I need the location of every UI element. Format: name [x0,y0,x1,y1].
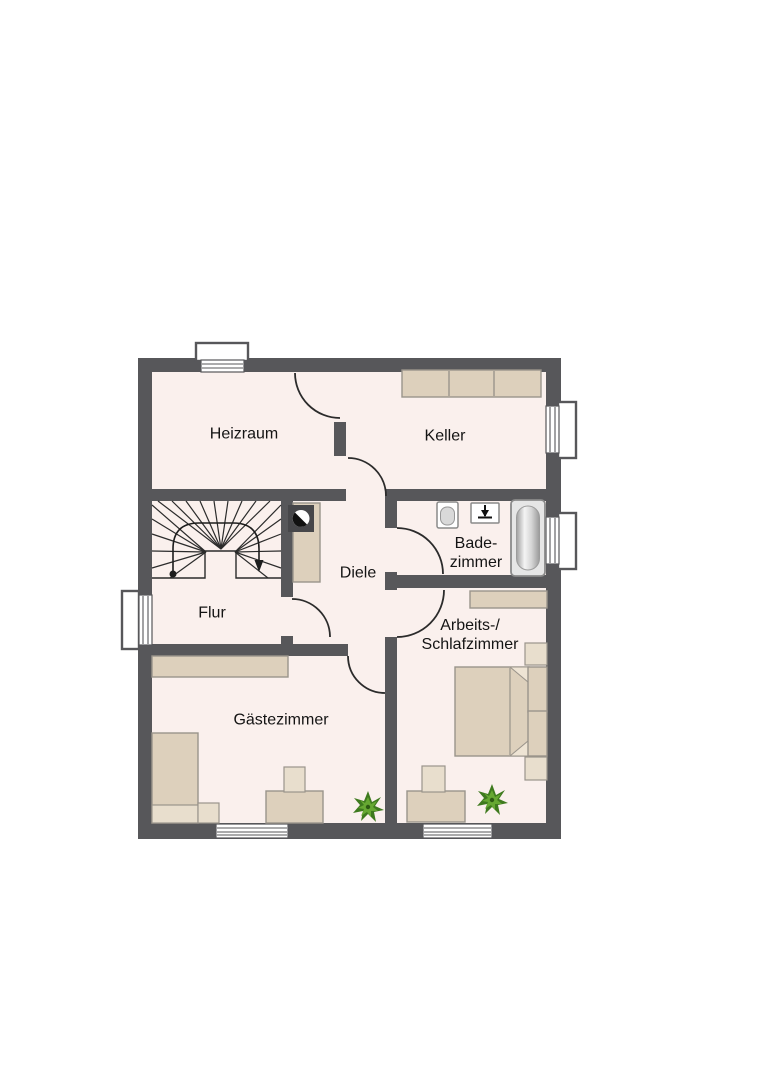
schlaf-nightstand-top [525,643,547,665]
room-label-flur: Flur [198,604,226,623]
toilet-icon [437,502,458,528]
room-label-gaestezimmer: Gästezimmer [233,711,328,730]
wall-flur-gaeste-divider [152,644,348,656]
gaeste-desk [266,791,323,823]
schlaf-desk [407,791,465,822]
gaeste-single-bed [152,733,198,823]
room-label-heizraum: Heizraum [210,425,278,444]
gaeste-chair [284,767,305,792]
floor-plan-drawing [0,0,764,1080]
schlaf-chair [422,766,445,792]
window-bottom-gaestezimmer [216,824,288,838]
window-left-flur [122,591,152,649]
wall-outer-bottom [138,823,561,839]
wall-heizraum-keller-divider [334,422,346,456]
walking-line-start-dot [170,571,177,578]
decor-sphere-icon [288,505,314,532]
window-top-heizraum [196,343,248,372]
keller-shelf-unit [402,370,541,397]
room-label-arbeits-line1: Arbeits-/ [422,616,519,635]
washbasin-icon [471,503,499,523]
schlaf-double-bed [455,667,547,756]
gaeste-wall-shelf [152,656,288,677]
wall-diele-bad-upper [385,501,397,528]
room-label-badezimmer-line2: zimmer [450,553,502,572]
room-label-keller: Keller [425,427,466,446]
schlaf-nightstand-bottom [525,757,547,780]
window-right-badezimmer [546,513,576,569]
wall-bad-schlaf-divider [385,575,546,588]
window-bottom-schlafzimmer [423,824,492,838]
bathtub-icon [511,500,545,576]
gaeste-nightstand [198,803,219,823]
room-label-badezimmer: Bade- zimmer [450,534,502,572]
room-label-diele: Diele [340,564,376,583]
wall-gaeste-schlaf-divider [385,637,397,823]
room-label-badezimmer-line1: Bade- [450,534,502,553]
schlaf-wall-shelf [470,591,547,608]
floor-plan-canvas: Heizraum Keller Bade- zimmer Diele Flur … [0,0,764,1080]
room-label-arbeits-schlafzimmer: Arbeits-/ Schlafzimmer [422,616,519,654]
wall-heizraum-bottom [152,489,346,501]
room-label-arbeits-line2: Schlafzimmer [422,635,519,654]
window-right-keller [546,402,576,458]
